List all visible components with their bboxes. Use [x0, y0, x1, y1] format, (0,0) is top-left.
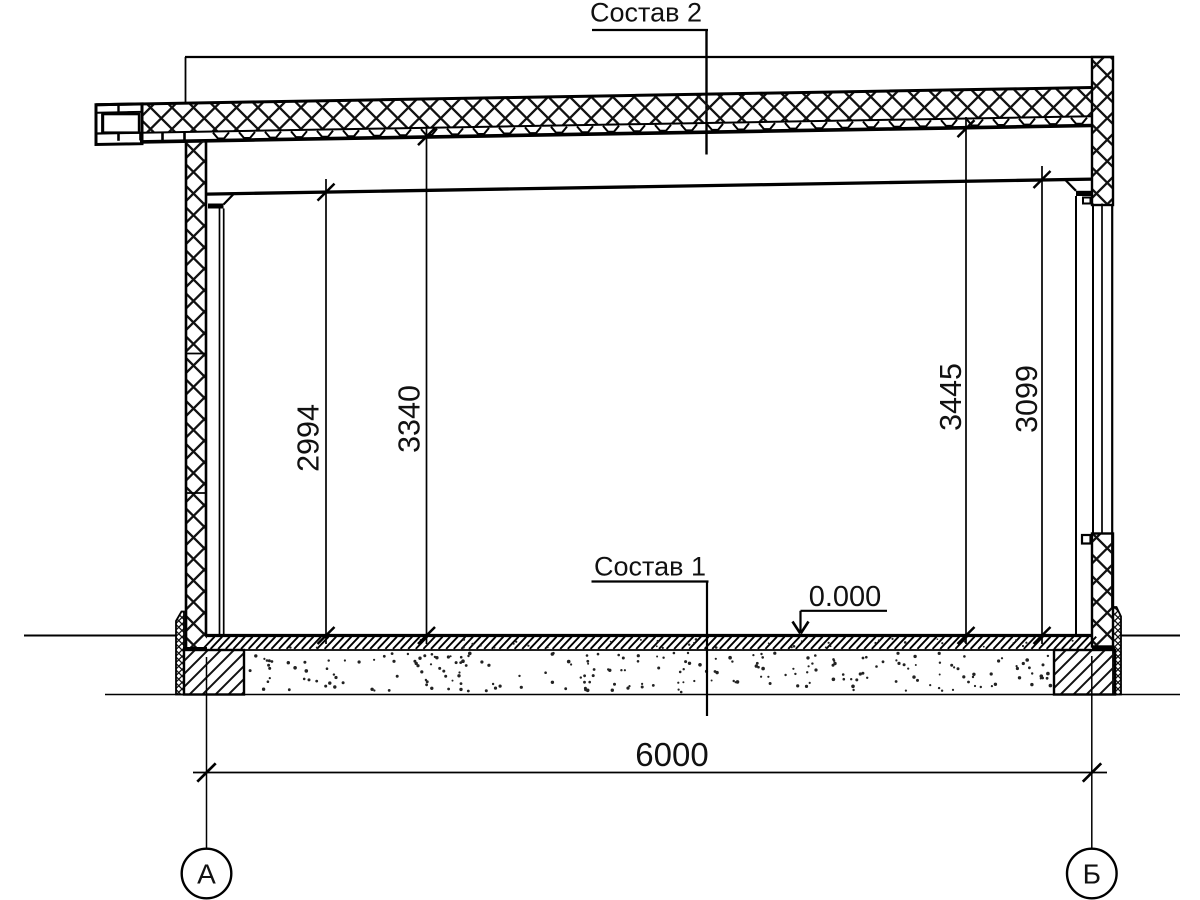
svg-text:0.000: 0.000: [809, 581, 882, 613]
svg-text:А: А: [197, 859, 216, 890]
svg-text:2994: 2994: [292, 404, 326, 472]
svg-text:Состав 1: Состав 1: [594, 552, 706, 582]
svg-text:3099: 3099: [1010, 365, 1044, 433]
svg-text:3340: 3340: [393, 385, 427, 453]
svg-text:6000: 6000: [635, 736, 708, 773]
svg-text:Состав 2: Состав 2: [590, 0, 702, 28]
svg-text:Б: Б: [1083, 859, 1101, 890]
svg-text:3445: 3445: [934, 363, 968, 431]
